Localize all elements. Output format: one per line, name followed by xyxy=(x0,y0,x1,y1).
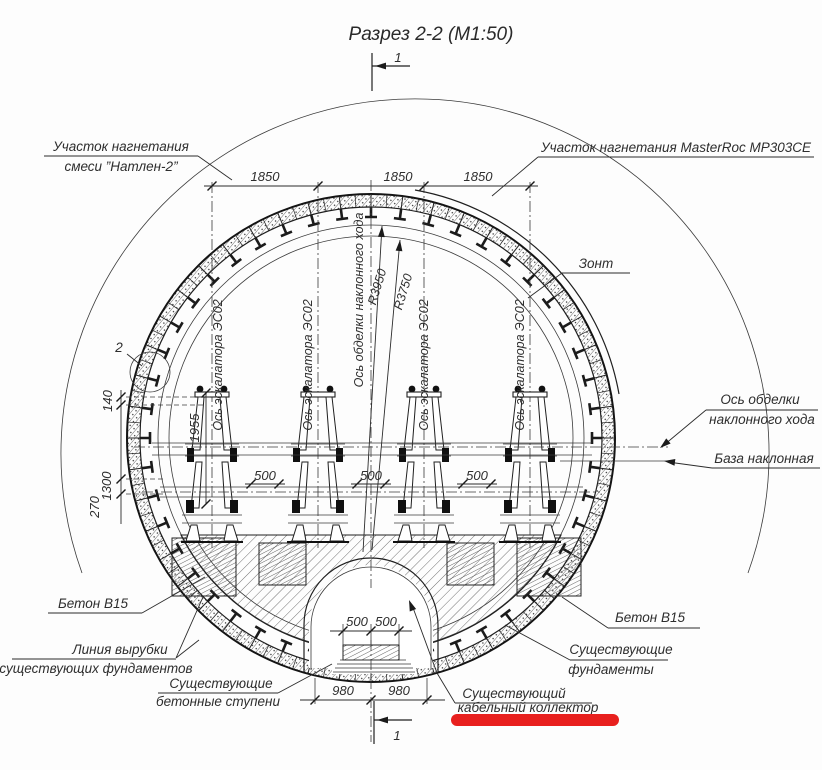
section-marker-bottom-label: 1 xyxy=(393,728,400,743)
label-concrete-right: Бетон В15 xyxy=(562,597,700,628)
dim-500c-2: 500 xyxy=(375,614,397,629)
dim-980-2: 980 xyxy=(388,683,410,698)
svg-text:Зонт: Зонт xyxy=(579,256,613,271)
existing-foundation-block xyxy=(259,543,306,585)
section-marker-top: 1 xyxy=(372,50,410,91)
drawing-title: Разрез 2-2 (М1:50) xyxy=(349,24,514,45)
label-escalator-axis-1: Ось эскалатора ЭС02 xyxy=(211,299,225,430)
label-grout-right: Участок нагнетания MasterRoc MP303CE xyxy=(492,140,814,196)
dim-500-1: 500 xyxy=(254,468,276,483)
svg-text:кабельный коллектор: кабельный коллектор xyxy=(458,700,599,715)
escalator-2 xyxy=(287,182,349,548)
label-incline-base: База наклонная xyxy=(664,451,820,468)
dim-980-1: 980 xyxy=(332,683,354,698)
svg-text:наклонного хода: наклонного хода xyxy=(709,412,815,427)
svg-text:смеси ”Натлен-2”: смеси ”Натлен-2” xyxy=(64,159,178,174)
svg-text:бетонные ступени: бетонные ступени xyxy=(156,694,280,709)
svg-text:Линия вырубки: Линия вырубки xyxy=(71,642,168,657)
svg-text:фундаменты: фундаменты xyxy=(568,662,654,677)
svg-text:Участок нагнетания MasterRoc M: Участок нагнетания MasterRoc MP303CE xyxy=(540,140,812,155)
svg-text:Ось обделки: Ось обделки xyxy=(720,392,800,407)
section-marker-top-label: 1 xyxy=(394,50,401,65)
dim-500-3: 500 xyxy=(466,468,488,483)
dim-1850-3: 1850 xyxy=(464,169,494,184)
label-escalator-axis-4: Ось эскалатора ЭС02 xyxy=(513,299,527,430)
svg-text:Бетон В15: Бетон В15 xyxy=(615,610,685,625)
existing-foundation-block xyxy=(172,538,236,596)
dim-1850-2: 1850 xyxy=(384,169,414,184)
svg-text:Участок нагнетания: Участок нагнетания xyxy=(52,139,189,154)
label-existing-foundations: Существующие фундаменты xyxy=(505,625,673,677)
detail-callout-2-label: 2 xyxy=(114,340,123,355)
svg-text:Существующий: Существующий xyxy=(462,686,566,701)
svg-text:Бетон В15: Бетон В15 xyxy=(58,596,128,611)
dim-270: 270 xyxy=(87,495,102,518)
drawing-canvas: Разрез 2-2 (М1:50) 1 xyxy=(0,0,822,770)
label-r3750: R3750 xyxy=(391,272,415,311)
label-escalator-axis-2: Ось эскалатора ЭС02 xyxy=(301,299,315,430)
engineering-drawing: Разрез 2-2 (М1:50) 1 xyxy=(0,0,822,770)
dim-1850-1: 1850 xyxy=(251,169,281,184)
label-incline-axis: Ось обделки наклонного хода xyxy=(658,392,818,451)
label-grout-left: Участок нагнетания смеси ”Натлен-2” xyxy=(44,139,232,180)
dim-1955: 1955 xyxy=(187,413,202,443)
dim-140: 140 xyxy=(100,389,115,411)
section-marker-bottom: 1 xyxy=(374,701,412,744)
existing-foundation-block xyxy=(447,543,494,585)
svg-text:База наклонная: База наклонная xyxy=(714,451,813,466)
label-incline-axis-vertical: Ось обделки наклонного хода xyxy=(352,213,366,388)
svg-text:Существующие: Существующие xyxy=(569,642,672,657)
svg-text:Существующие: Существующие xyxy=(169,676,272,691)
label-r3950: R3950 xyxy=(365,267,389,306)
label-escalator-axis-3: Ось эскалатора ЭС02 xyxy=(417,299,431,430)
svg-text:существующих фундаментов: существующих фундаментов xyxy=(0,661,193,676)
dim-500c-1: 500 xyxy=(346,614,368,629)
existing-foundation-block xyxy=(517,538,581,596)
dim-1300: 1300 xyxy=(99,471,114,501)
red-underline-highlight[interactable] xyxy=(451,714,619,726)
